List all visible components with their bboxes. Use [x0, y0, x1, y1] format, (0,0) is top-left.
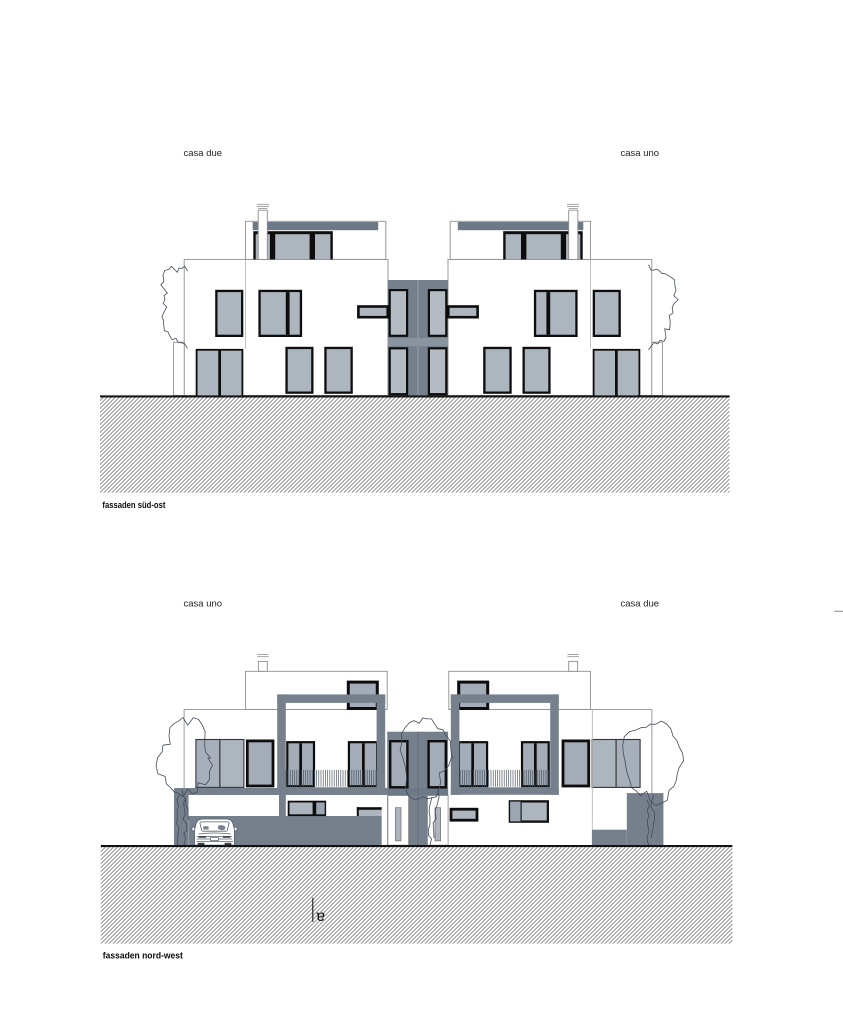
- svg-text:casa due: casa due: [184, 148, 223, 159]
- svg-text:casa uno: casa uno: [184, 599, 223, 610]
- svg-text:a: a: [316, 909, 325, 926]
- svg-text:fassaden nord-west: fassaden nord-west: [103, 951, 183, 961]
- svg-text:fassaden süd-ost: fassaden süd-ost: [102, 500, 165, 510]
- svg-text:casa due: casa due: [621, 599, 660, 610]
- svg-text:casa uno: casa uno: [621, 148, 660, 159]
